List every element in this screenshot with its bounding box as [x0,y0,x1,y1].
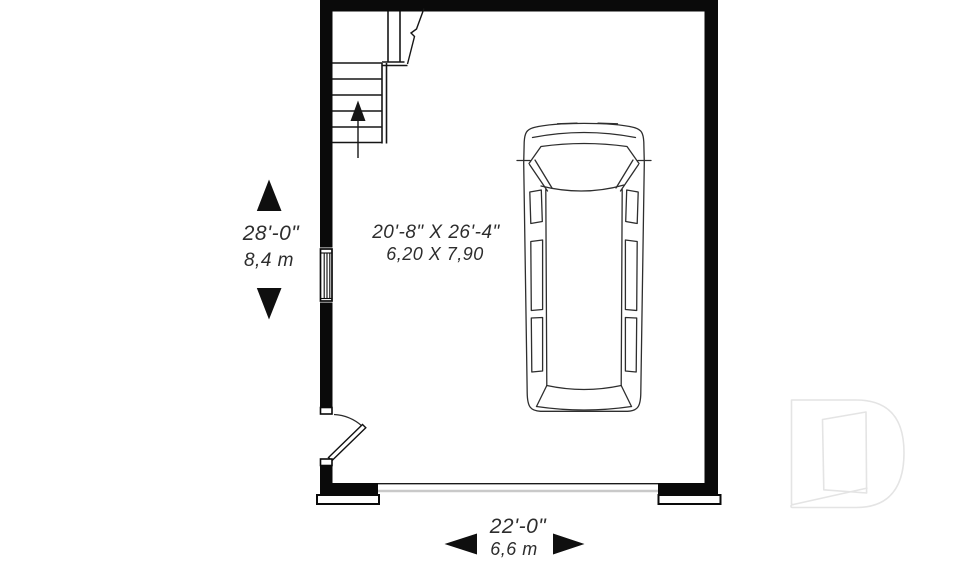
floor-plan-canvas: 20'-8" X 26'-4" 6,20 X 7,90 28'-0" 8,4 m… [0,0,960,569]
car-rear-bumper [537,407,632,411]
footing-right [659,495,721,504]
dimension-arrow-up-icon [257,180,282,212]
d-logo-watermark [791,400,904,508]
car-windshield [529,144,639,164]
horizontal-dimension-imperial-label: 22'-0" [418,516,618,538]
dimension-arrow-down-icon [257,288,282,320]
horizontal-dimension-metric-label: 6,6 m [414,540,614,559]
car-top-view [517,123,651,411]
door-jamb-top [321,408,333,415]
vertical-dimension-imperial-label: 28'-0" [171,223,371,245]
footing-left [317,495,379,504]
car-roof-edges [546,190,622,386]
door-jamb-bottom [321,459,333,466]
entry-door [319,408,366,466]
floor-plan-drawing [0,0,960,569]
car-body [524,123,645,411]
vertical-dimension-metric-label: 8,4 m [169,251,369,271]
stair-break-line [408,9,425,65]
stair-direction-arrow-icon [351,101,366,159]
wall-right [705,0,719,486]
staircase [333,9,425,159]
wall-top [320,0,718,12]
door-swing-arc [334,415,362,427]
